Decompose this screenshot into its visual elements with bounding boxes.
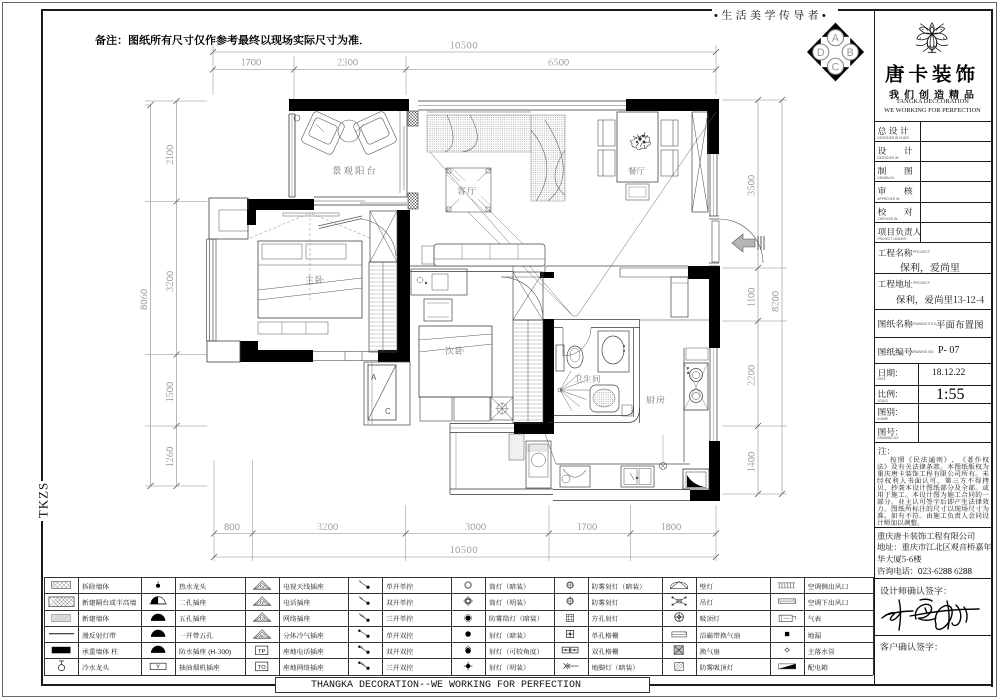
svg-text:A: A: [832, 31, 840, 46]
svg-text:Y: Y: [156, 662, 160, 671]
svg-text:TO: TO: [259, 616, 264, 622]
svg-text:TP: TP: [259, 600, 264, 606]
svg-text:C: C: [832, 59, 840, 74]
svg-text:B: B: [847, 45, 854, 60]
svg-text:TV: TV: [259, 584, 264, 590]
svg-text:D: D: [817, 45, 825, 60]
svg-text:AC: AC: [259, 632, 265, 638]
svg-text:TP: TP: [258, 646, 266, 655]
svg-text:TO: TO: [258, 662, 266, 671]
